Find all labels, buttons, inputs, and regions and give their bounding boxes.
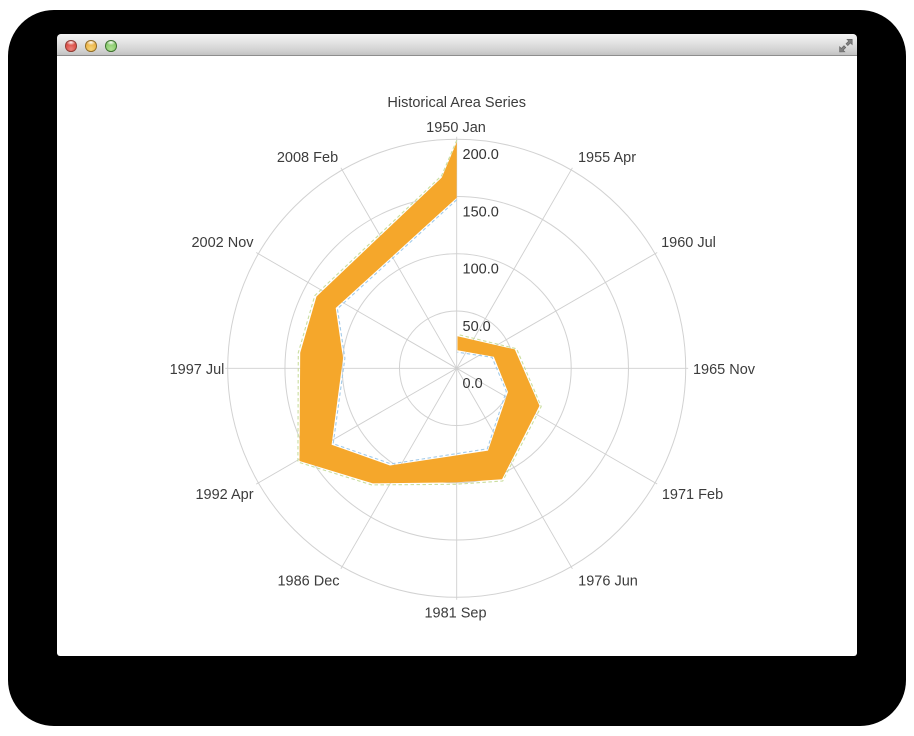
svg-text:1955 Apr: 1955 Apr: [578, 150, 636, 166]
svg-text:1965 Nov: 1965 Nov: [693, 362, 756, 378]
svg-text:1986 Dec: 1986 Dec: [277, 574, 339, 590]
svg-text:2002 Nov: 2002 Nov: [191, 235, 254, 251]
svg-text:50.0: 50.0: [463, 319, 491, 335]
svg-text:1960 Jul: 1960 Jul: [661, 235, 716, 251]
svg-text:150.0: 150.0: [463, 204, 499, 220]
svg-text:1992 Apr: 1992 Apr: [195, 487, 253, 503]
svg-text:2008 Feb: 2008 Feb: [277, 150, 338, 166]
svg-text:Historical Area Series: Historical Area Series: [387, 95, 526, 111]
svg-text:200.0: 200.0: [463, 147, 499, 163]
svg-text:1997 Jul: 1997 Jul: [170, 362, 225, 378]
svg-text:1976 Jun: 1976 Jun: [578, 574, 638, 590]
svg-text:100.0: 100.0: [463, 262, 499, 278]
svg-text:0.0: 0.0: [463, 376, 483, 392]
svg-text:1950 Jan: 1950 Jan: [426, 120, 486, 136]
svg-text:1971 Feb: 1971 Feb: [662, 487, 723, 503]
svg-text:1981 Sep: 1981 Sep: [424, 606, 486, 622]
